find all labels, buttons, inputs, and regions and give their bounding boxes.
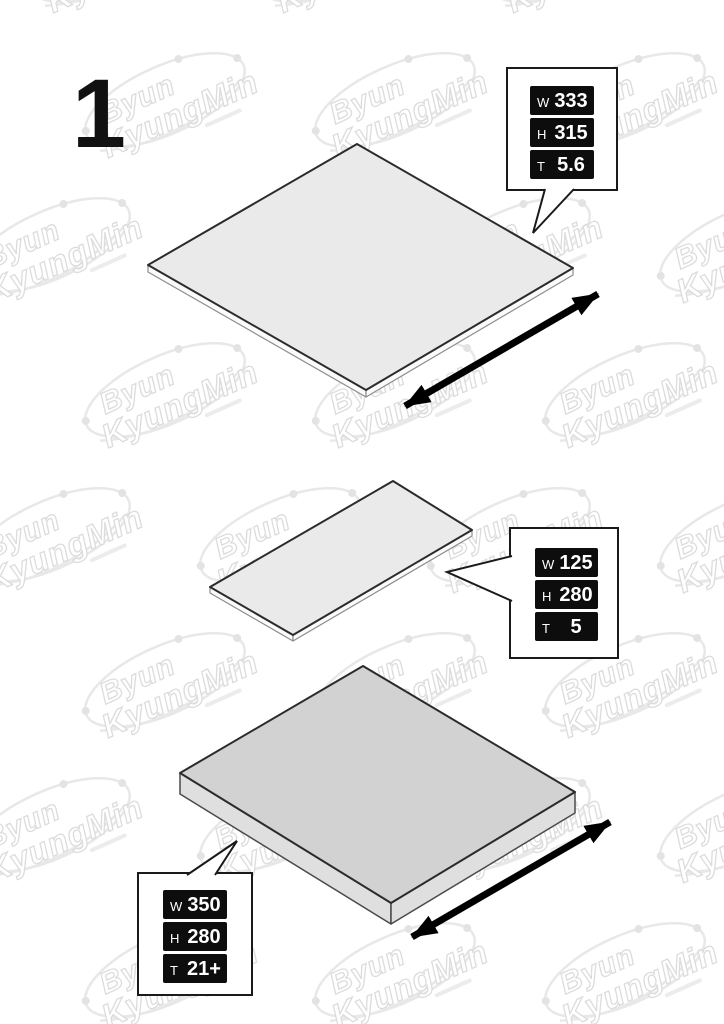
dim-value: 21+ [187, 958, 221, 980]
dim-value: 350 [187, 894, 220, 916]
watermark [14, 0, 211, 30]
dim-value: 5 [570, 616, 581, 638]
dim-label: W [537, 95, 550, 110]
watermark [644, 755, 724, 900]
dim-value: 315 [554, 122, 587, 144]
dim-value: 125 [559, 552, 592, 574]
instruction-page: Byun KyungMin 1 W 333 H 315 T [0, 0, 724, 1024]
watermark [0, 175, 151, 320]
dimension-callout-1: W 333 H 315 T 5.6 [507, 68, 617, 233]
watermark [299, 30, 496, 175]
dim-value: 333 [554, 90, 587, 112]
watermark [0, 465, 151, 610]
watermark [474, 0, 671, 30]
dim-value: 280 [559, 584, 592, 606]
dim-label: T [537, 159, 545, 174]
step-number: 1 [72, 59, 126, 168]
watermark [69, 610, 266, 755]
dim-value: 5.6 [557, 154, 585, 176]
watermark [644, 175, 724, 320]
watermark [644, 465, 724, 610]
dim-label: W [542, 557, 555, 572]
watermark [0, 755, 151, 900]
watermark [529, 320, 724, 465]
dim-label: H [170, 931, 179, 946]
dim-label: H [537, 127, 546, 142]
dim-label: H [542, 589, 551, 604]
watermark [529, 900, 724, 1024]
watermark [69, 320, 266, 465]
watermark [244, 0, 441, 30]
dim-value: 280 [187, 926, 220, 948]
dim-label: W [170, 899, 183, 914]
dim-label: T [542, 621, 550, 636]
dim-label: T [170, 963, 178, 978]
